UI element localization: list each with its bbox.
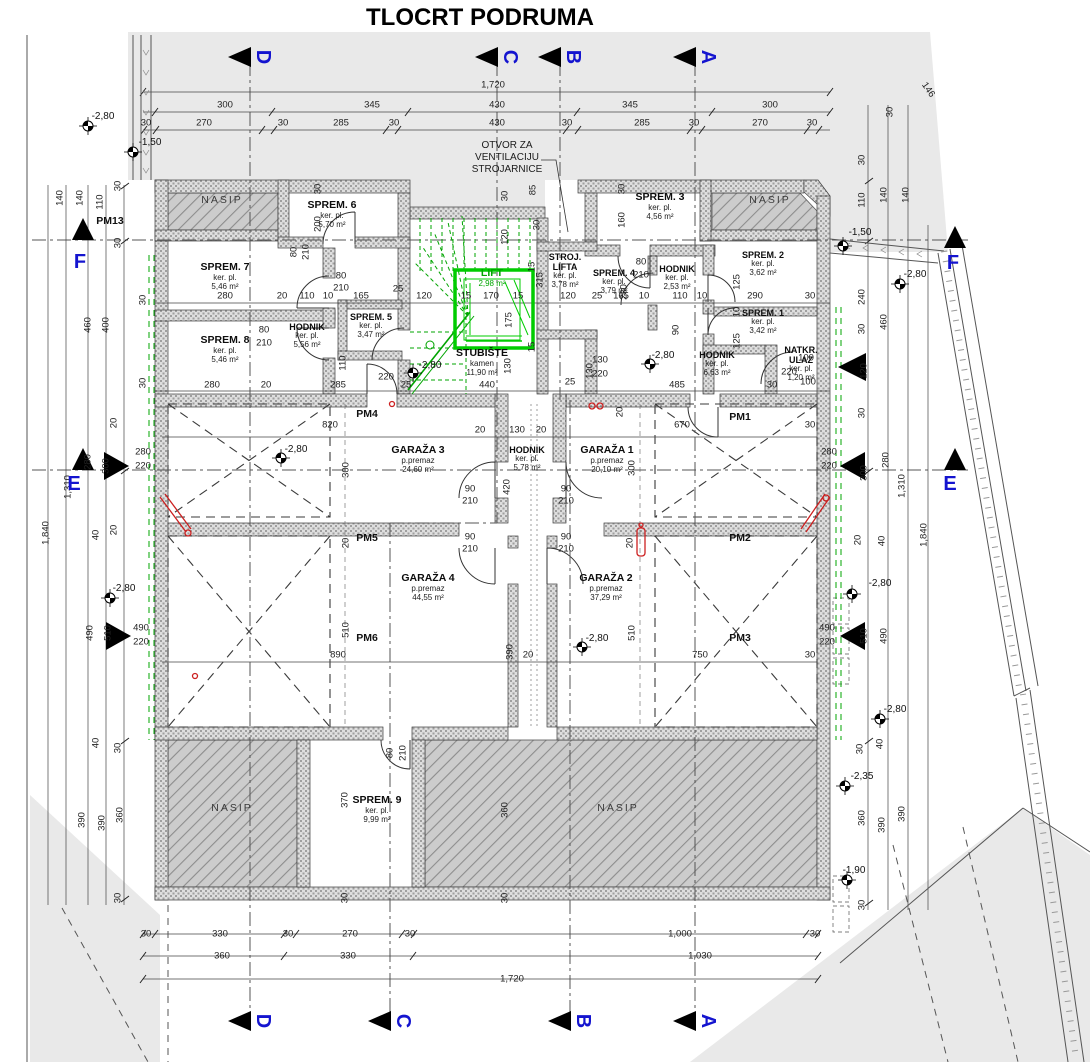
room-area: 3,47 m² xyxy=(350,331,392,340)
dimension-label: 110 xyxy=(672,291,687,301)
room-label: SPREM. 3 ker. pl. 4,56 m² xyxy=(635,192,684,222)
dimension-label: 80 xyxy=(336,271,347,281)
zone-label: PM13 xyxy=(96,216,123,227)
dimension-label: 40 xyxy=(91,738,101,749)
room-label: HODNIK ker. pl. 6,63 m² xyxy=(699,350,735,378)
dimension-label: 360 xyxy=(857,810,867,826)
dimension-label: 390 xyxy=(877,817,887,833)
room-name: SPREM. 9 xyxy=(352,795,401,807)
dimension-label: 20 xyxy=(625,538,635,549)
dimension-label: 10 xyxy=(697,291,708,301)
level-value: -2,80 xyxy=(884,705,907,715)
dimension-label: 210 xyxy=(462,496,478,506)
room-area: 2,98 m² xyxy=(478,280,505,289)
dimension-label: 40 xyxy=(877,536,887,547)
room-area: 5,46 m² xyxy=(200,356,249,365)
annotation-line-1: OTVOR ZA xyxy=(472,140,543,152)
room-name: GARAŽA 1 xyxy=(580,445,633,457)
room-area: 37,29 m² xyxy=(579,594,632,603)
dimension-label: 20 xyxy=(536,425,547,435)
room-label: HODNIK ker. pl. 5,56 m² xyxy=(289,322,325,350)
dimension-label: 400 xyxy=(101,317,111,333)
dimension-label: 390 xyxy=(77,812,87,828)
dimension-label: 130 xyxy=(509,425,525,435)
level-value: -2,80 xyxy=(904,270,927,280)
room-area: 5,78 m² xyxy=(509,464,545,473)
dimension-label: 30 xyxy=(138,378,148,389)
dimension-label: 210 xyxy=(256,338,272,348)
room-label: HODNIK ker. pl. 5,78 m² xyxy=(509,445,545,473)
room-label: GARAŽA 2 p.premaz 37,29 m² xyxy=(579,573,632,603)
section-letter: D xyxy=(253,1014,273,1028)
room-area: 24,60 m² xyxy=(391,466,444,475)
room-label: SPREM. 2 ker. pl. 3,62 m² xyxy=(742,250,784,278)
dimension-label: 210 xyxy=(462,544,478,554)
dimension-label: 210 xyxy=(398,745,408,761)
room-name: SPREM. 8 xyxy=(200,335,249,347)
dimension-label: 30 xyxy=(278,118,289,128)
section-letter: E xyxy=(67,474,80,494)
level-value: -2,80 xyxy=(586,634,609,644)
dimension-label: 290 xyxy=(747,291,763,301)
dimension-label: 160 xyxy=(617,212,627,228)
section-letter: C xyxy=(393,1014,413,1028)
dimension-label: 510 xyxy=(341,622,351,638)
annotation-line-2: VENTILACIJU xyxy=(472,152,543,164)
dimension-label: 510 xyxy=(627,625,637,641)
dimension-label: 300 xyxy=(859,465,869,481)
room-name: GARAŽA 2 xyxy=(579,573,632,585)
level-value: -2,80 xyxy=(869,579,892,589)
dimension-label: 330 xyxy=(212,929,228,939)
dimension-label: 40 xyxy=(875,739,885,750)
dimension-label: 820 xyxy=(322,420,338,430)
dimension-label: 30 xyxy=(405,929,416,939)
level-value: -2,80 xyxy=(285,445,308,455)
dimension-label: 125 xyxy=(732,274,742,290)
level-value: -2,80 xyxy=(113,584,136,594)
dimension-label: 30 xyxy=(532,220,542,231)
room-label: SPREM. 7 ker. pl. 5,46 m² xyxy=(200,262,249,292)
dimension-label: 1,840 xyxy=(41,521,51,545)
dimension-label: 165 xyxy=(353,291,369,301)
dimension-label: 300 xyxy=(217,100,233,110)
dimension-label: 15 xyxy=(461,291,472,301)
dimension-label: 110 xyxy=(857,192,867,207)
dimension-label: 300 xyxy=(627,460,637,476)
dimension-label: 90 xyxy=(561,532,572,542)
level-value: -1,50 xyxy=(849,228,872,238)
room-area: 3,78 m² xyxy=(541,281,589,290)
dimension-label: 120 xyxy=(859,363,869,379)
dimension-label: 285 xyxy=(634,118,650,128)
dimension-label: 1,030 xyxy=(688,951,712,961)
dimension-label: 110 xyxy=(338,355,348,370)
dimension-label: 100 xyxy=(798,353,814,363)
dimension-label: 30 xyxy=(810,929,821,939)
zone-label: NASIP xyxy=(211,803,253,814)
dimension-label: 280 xyxy=(881,452,891,468)
dimension-label: 30 xyxy=(807,118,818,128)
dimension-label: 30 xyxy=(500,191,510,202)
dimension-label: 315 xyxy=(535,272,545,288)
dimension-label: 90 xyxy=(465,532,476,542)
dimension-label: 390 xyxy=(897,806,907,822)
dimension-label: 390 xyxy=(505,644,515,660)
section-letter: F xyxy=(947,253,959,273)
dimension-label: 490 xyxy=(819,623,835,633)
dimension-label: 20 xyxy=(261,380,272,390)
dimension-label: 510 xyxy=(859,628,869,644)
dimension-label: 1,720 xyxy=(481,80,505,90)
dimension-label: 490 xyxy=(879,628,889,644)
room-label: STROJ. LIFTA ker. pl. 3,78 m² xyxy=(541,252,589,290)
room-label: HODNIK ker. pl. 2,53 m² xyxy=(659,264,695,292)
room-area: 3,42 m² xyxy=(742,327,784,336)
dimension-label: 270 xyxy=(752,118,768,128)
dimension-label: 210 xyxy=(301,244,311,260)
level-value: -2,80 xyxy=(419,361,442,371)
dimension-label: 285 xyxy=(330,380,346,390)
dimension-label: 10 xyxy=(323,291,334,301)
dimension-label: 220 xyxy=(781,367,797,377)
dimension-label: 30 xyxy=(689,118,700,128)
dimension-label: 510 xyxy=(103,625,113,641)
room-label: STUBIŠTE kamen 11,90 m² xyxy=(456,348,508,378)
dimension-label: 25 xyxy=(401,380,412,390)
zone-label: PM6 xyxy=(356,633,378,644)
dimension-label: 20 xyxy=(853,535,863,546)
dimension-label: 220 xyxy=(135,461,151,471)
dimension-label: 345 xyxy=(622,100,638,110)
dimension-label: 125 xyxy=(732,333,742,349)
dimension-label: 300 xyxy=(341,462,351,478)
room-label: SPREM. 5 ker. pl. 3,47 m² xyxy=(350,312,392,340)
dimension-label: 140 xyxy=(75,190,85,206)
dimension-label: 80 xyxy=(259,325,270,335)
annotation-line-3: STROJARNICE xyxy=(472,164,543,176)
dimension-label: 490 xyxy=(133,623,149,633)
room-name: LIFT xyxy=(478,268,505,280)
room-label: SPREM. 1 ker. pl. 3,42 m² xyxy=(742,308,784,336)
dimension-label: 20 xyxy=(475,425,486,435)
dimension-label: 85 xyxy=(528,185,538,196)
dimension-label: 670 xyxy=(674,420,690,430)
dimension-label: 1,840 xyxy=(919,523,929,547)
dimension-label: 360 xyxy=(214,951,230,961)
level-value: -2,80 xyxy=(652,351,675,361)
dimension-label: 30 xyxy=(805,650,816,660)
zone-label: NASIP xyxy=(749,195,791,206)
dimension-label: 30 xyxy=(283,929,294,939)
dimension-label: 30 xyxy=(562,118,573,128)
dimension-label: 130 xyxy=(503,358,513,374)
dimension-label: 30 xyxy=(767,380,778,390)
dimension-label: 80 xyxy=(289,247,299,258)
dimension-label: 170 xyxy=(483,291,499,301)
dimension-label: 20 xyxy=(523,650,534,660)
dimension-label: 890 xyxy=(330,650,346,660)
dimension-label: 175 xyxy=(504,312,514,328)
dimension-label: 90 xyxy=(465,484,476,494)
dimension-label: 30 xyxy=(141,929,152,939)
section-letter: E xyxy=(943,474,956,494)
dimension-label: 10 xyxy=(732,307,742,318)
section-letter: B xyxy=(563,50,583,64)
dimension-label: 300 xyxy=(101,458,111,474)
dimension-label: 90 xyxy=(671,325,681,336)
room-area: 11,90 m² xyxy=(456,369,508,378)
zone-label: PM1 xyxy=(729,412,751,423)
dimension-label: 30 xyxy=(857,900,867,911)
dimension-label: 15 xyxy=(527,342,537,353)
basement-floor-plan: TLOCRT PODRUMA OTVOR ZA VENTILACIJU STRO… xyxy=(0,0,1090,1062)
dimension-label: 1,720 xyxy=(500,974,524,984)
dimension-label: 240 xyxy=(857,289,867,305)
dimension-label: 100 xyxy=(800,377,816,387)
dimension-label: 80 xyxy=(385,748,395,759)
room-name: GARAŽA 3 xyxy=(391,445,444,457)
room-label: SPREM. 8 ker. pl. 5,46 m² xyxy=(200,335,249,365)
dimension-label: 30 xyxy=(340,893,350,904)
dimension-label: 1,310 xyxy=(897,474,907,498)
dimension-label: 230 xyxy=(619,284,629,300)
dimension-label: 345 xyxy=(364,100,380,110)
dimension-label: 30 xyxy=(857,324,867,335)
room-area: 4,56 m² xyxy=(635,213,684,222)
dimension-label: 30 xyxy=(113,238,123,249)
dimension-label: 430 xyxy=(489,118,505,128)
dimension-label: 30 xyxy=(138,295,148,306)
dimension-label: 360 xyxy=(500,802,510,818)
section-letter: A xyxy=(698,50,718,64)
dimension-label: 40 xyxy=(91,530,101,541)
dimension-label: 25 xyxy=(592,291,603,301)
dimension-label: 20 xyxy=(109,418,119,429)
dimension-label: 485 xyxy=(669,380,685,390)
dimension-label: 220 xyxy=(821,461,837,471)
dimension-label: 120 xyxy=(500,229,510,245)
dimension-label: 30 xyxy=(885,107,895,118)
dimension-label: 120 xyxy=(560,291,576,301)
dimension-label: 30 xyxy=(389,118,400,128)
dimension-label: 460 xyxy=(879,314,889,330)
room-area: 5,56 m² xyxy=(289,341,325,350)
room-label: GARAŽA 4 p.premaz 44,55 m² xyxy=(401,573,454,603)
room-name: SPREM. 7 xyxy=(200,262,249,274)
zone-label: PM2 xyxy=(729,533,751,544)
room-label: SPREM. 9 ker. pl. 9,99 m² xyxy=(352,795,401,825)
dimension-label: 280 xyxy=(217,291,233,301)
section-letter: B xyxy=(573,1014,593,1028)
room-name: STROJ. LIFTA xyxy=(541,252,589,272)
dimension-label: 25 xyxy=(565,377,576,387)
dimension-label: 370 xyxy=(340,792,350,808)
dimension-label: 280 xyxy=(83,454,93,470)
dimension-label: 140 xyxy=(55,190,65,206)
dimension-label: 130 xyxy=(585,363,595,379)
ventilation-annotation: OTVOR ZA VENTILACIJU STROJARNICE xyxy=(472,140,543,175)
room-area: 6,63 m² xyxy=(699,369,735,378)
zone-label: NASIP xyxy=(597,803,639,814)
room-name: SPREM. 6 xyxy=(307,200,356,212)
dimension-label: 30 xyxy=(141,118,152,128)
dimension-label: 140 xyxy=(879,187,889,203)
dimension-label: 30 xyxy=(113,743,123,754)
dimension-label: 200 xyxy=(313,216,323,232)
dimension-label: 360 xyxy=(115,807,125,823)
page-title: TLOCRT PODRUMA xyxy=(366,4,594,32)
section-letter: A xyxy=(698,1014,718,1028)
room-name: SPREM. 3 xyxy=(635,192,684,204)
dimension-label: 30 xyxy=(313,184,323,195)
zone-label: PM5 xyxy=(356,533,378,544)
dimension-label: 210 xyxy=(558,544,574,554)
dimension-label: 20 xyxy=(341,538,351,549)
dimension-label: 430 xyxy=(489,100,505,110)
dimension-label: 270 xyxy=(342,929,358,939)
dimension-label: 220 xyxy=(819,637,835,647)
room-name: STUBIŠTE xyxy=(456,348,508,360)
dimension-label: 15 xyxy=(513,291,524,301)
room-area: 3,62 m² xyxy=(742,269,784,278)
dimension-label: 80 xyxy=(636,257,647,267)
dimension-label: 30 xyxy=(805,291,816,301)
dimension-label: 280 xyxy=(204,380,220,390)
dimension-label: 30 xyxy=(617,184,627,195)
dimension-label: 220 xyxy=(133,637,149,647)
dimension-label: 285 xyxy=(333,118,349,128)
dimension-label: 30 xyxy=(113,181,123,192)
zone-label: PM3 xyxy=(729,633,751,644)
dimension-label: 750 xyxy=(692,650,708,660)
level-value: -2,80 xyxy=(92,112,115,122)
dimension-label: 490 xyxy=(85,625,95,641)
level-value: -1,90 xyxy=(843,866,866,876)
dimension-label: 1,000 xyxy=(668,929,692,939)
dimension-label: 20 xyxy=(277,291,288,301)
dimension-label: 30 xyxy=(113,893,123,904)
dimension-label: 30 xyxy=(857,155,867,166)
dimension-label: 30 xyxy=(857,408,867,419)
dimension-label: 270 xyxy=(196,118,212,128)
dimension-label: 30 xyxy=(855,744,865,755)
dimension-label: 110 xyxy=(95,194,105,209)
dimension-label: 20 xyxy=(109,525,119,536)
section-letter: F xyxy=(74,252,86,272)
section-letter: C xyxy=(500,50,520,64)
dimension-label: 210 xyxy=(333,283,349,293)
dimension-label: 30 xyxy=(500,893,510,904)
dimension-label: 280 xyxy=(135,447,151,457)
dimension-label: 25 xyxy=(393,284,404,294)
dimension-label: 120 xyxy=(416,291,432,301)
dimension-label: 460 xyxy=(83,317,93,333)
level-value: -2,35 xyxy=(851,772,874,782)
dimension-label: 390 xyxy=(97,815,107,831)
dimension-label: 140 xyxy=(901,187,911,203)
dimension-label: 20 xyxy=(615,407,625,418)
room-area: 44,55 m² xyxy=(401,594,454,603)
room-area: 9,99 m² xyxy=(352,816,401,825)
dimension-label: 330 xyxy=(340,951,356,961)
room-label: LIFT 2,98 m² xyxy=(478,268,505,289)
dimension-label: 440 xyxy=(479,380,495,390)
dimension-label: 90 xyxy=(561,484,572,494)
zone-label: PM4 xyxy=(356,409,378,420)
dimension-label: 300 xyxy=(762,100,778,110)
level-value: -1,50 xyxy=(139,138,162,148)
room-label: GARAŽA 3 p.premaz 24,60 m² xyxy=(391,445,444,475)
dimension-label: 210 xyxy=(633,270,649,280)
dimension-label: 210 xyxy=(558,496,574,506)
dimension-label: 220 xyxy=(378,372,394,382)
dimension-label: 30 xyxy=(805,420,816,430)
dimension-label: 15 xyxy=(527,262,537,273)
section-letter: D xyxy=(253,50,273,64)
dimension-label: 10 xyxy=(639,291,650,301)
dimension-label: 110 xyxy=(299,291,314,301)
dimension-label: 420 xyxy=(502,479,512,495)
dimension-label: 280 xyxy=(821,447,837,457)
zone-label: NASIP xyxy=(201,195,243,206)
room-name: GARAŽA 4 xyxy=(401,573,454,585)
